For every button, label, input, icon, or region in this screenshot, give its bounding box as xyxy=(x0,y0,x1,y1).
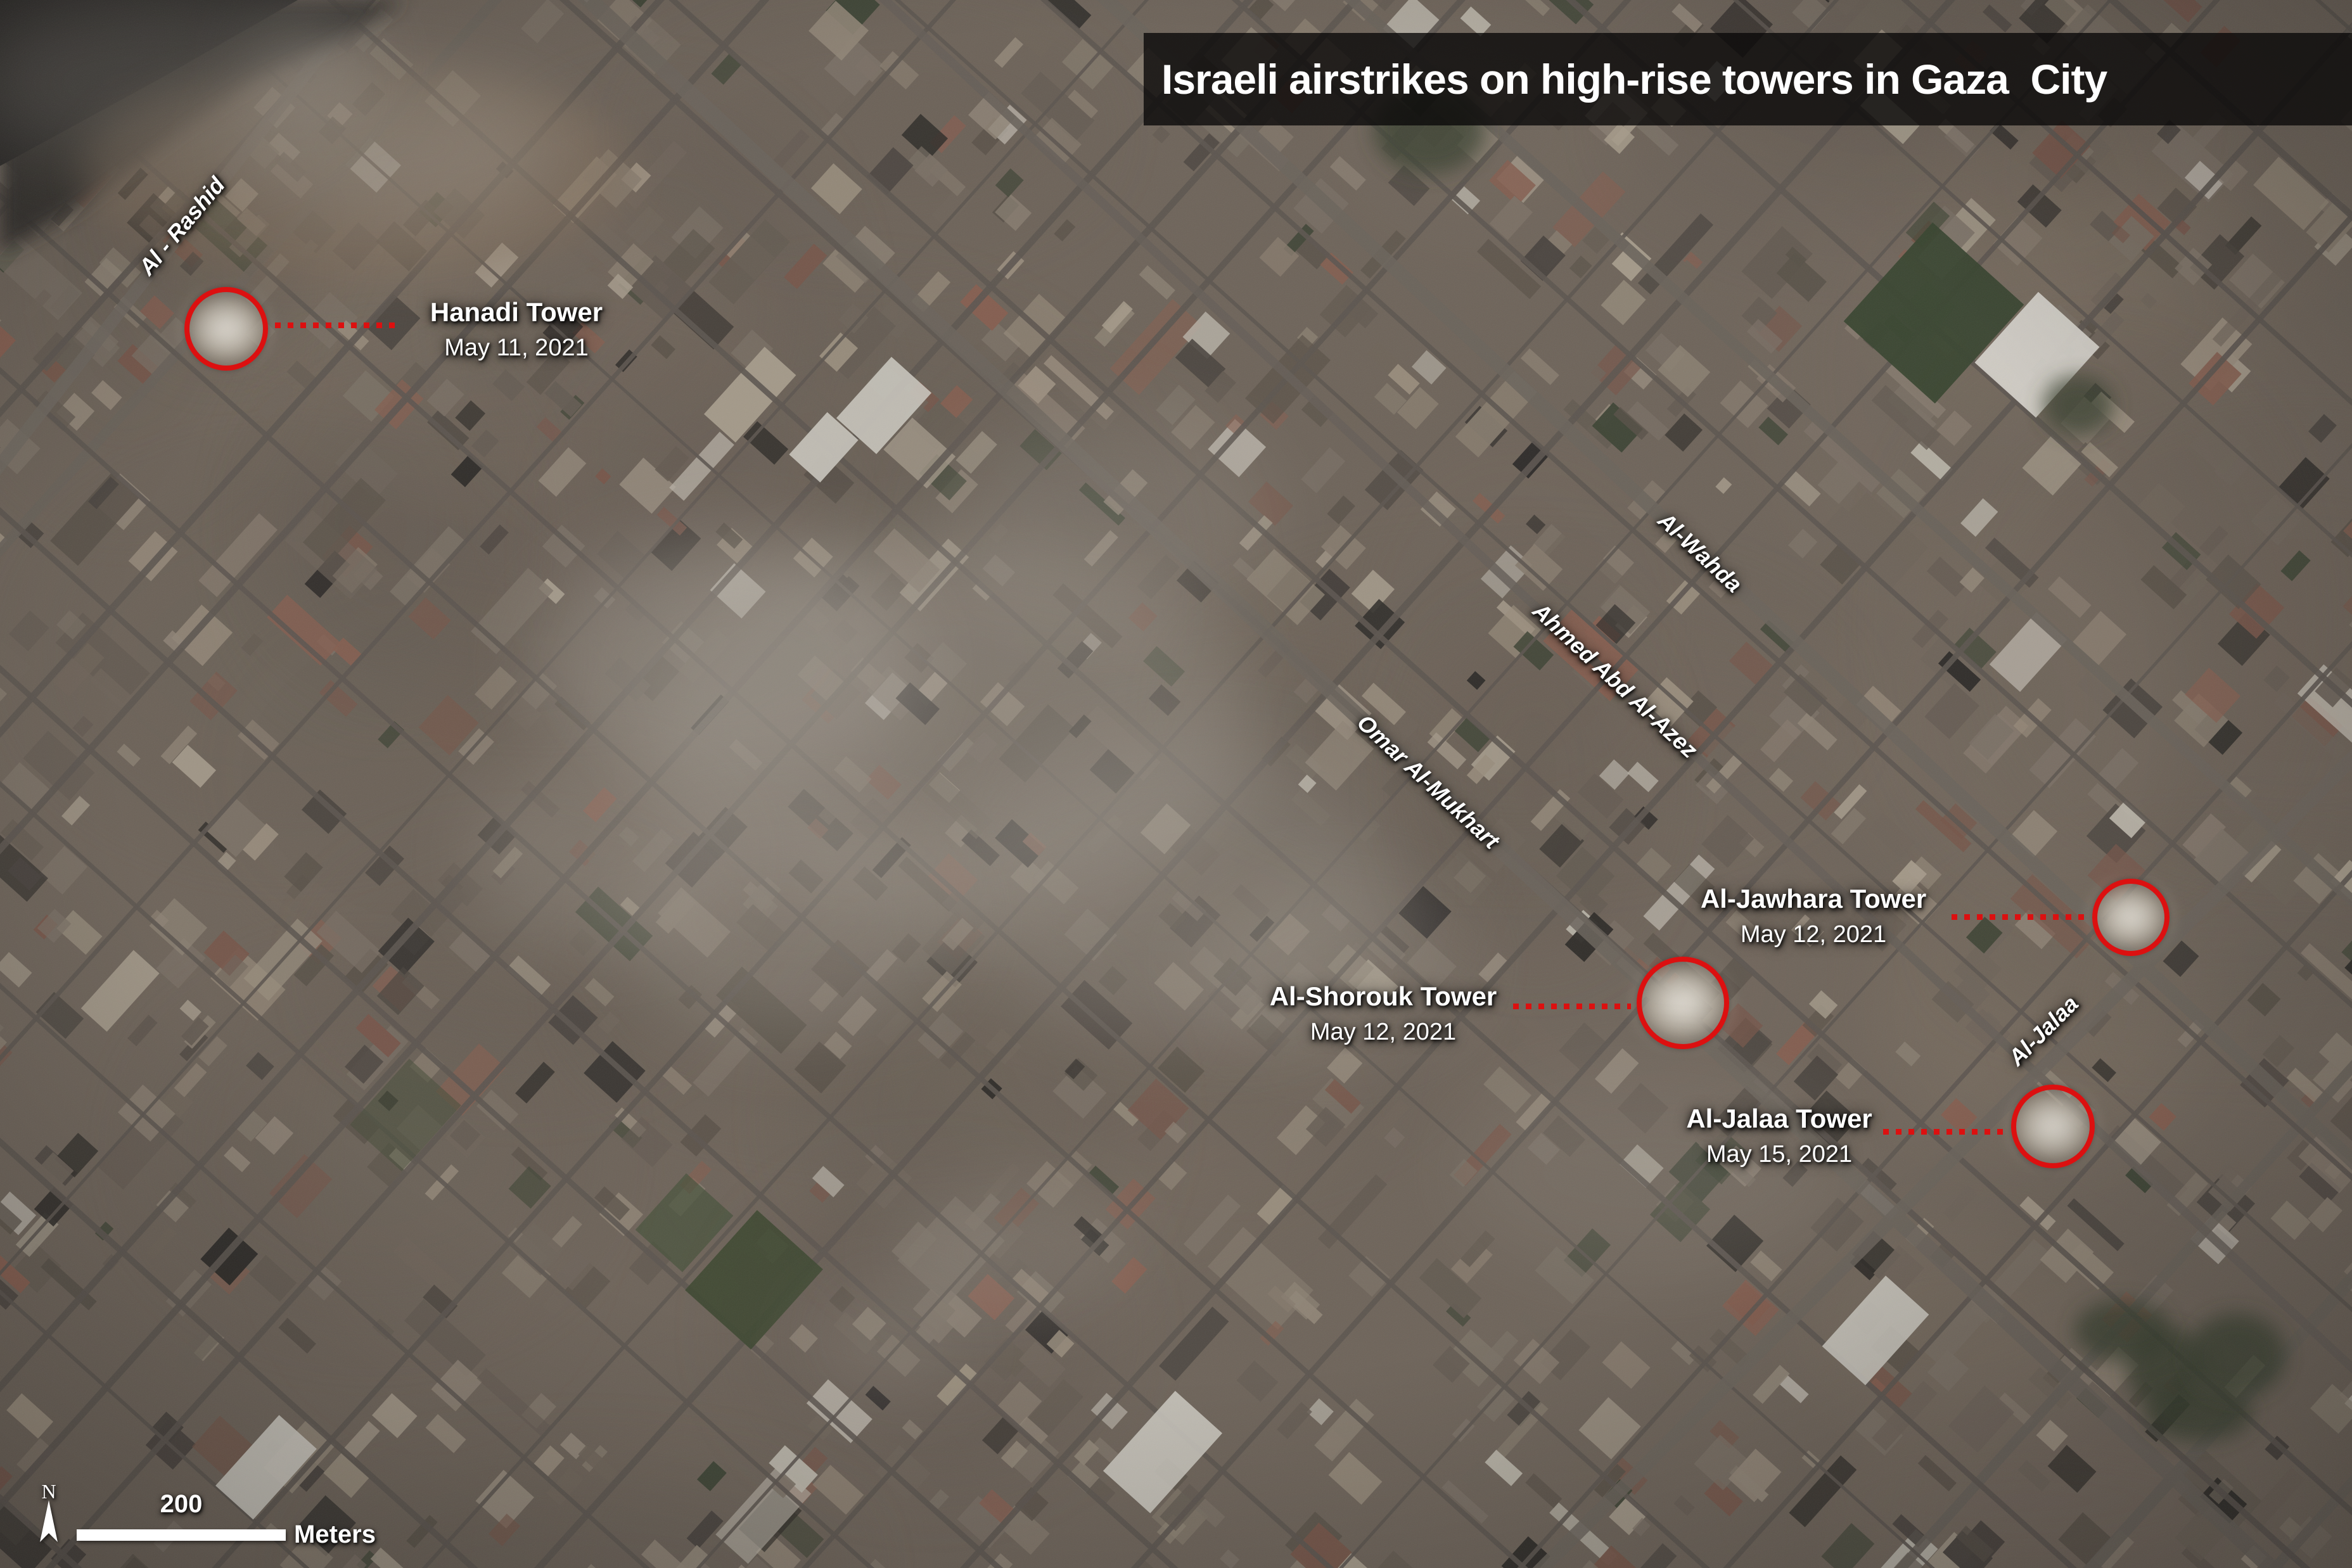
title-banner: Israeli airstrikes on high-rise towers i… xyxy=(1144,33,2352,125)
tower-name: Al-Jawhara Tower xyxy=(1701,881,1926,917)
tower-name: Al-Shorouk Tower xyxy=(1270,978,1497,1014)
strike-date: May 11, 2021 xyxy=(430,330,603,366)
map-title: Israeli airstrikes on high-rise towers i… xyxy=(1161,55,2107,103)
strike-label-al-shorouk-tower: Al-Shorouk TowerMay 12, 2021 xyxy=(1270,978,1497,1050)
scale-bar-value: 200 xyxy=(160,1490,203,1519)
strike-label-al-jalaa-tower: Al-Jalaa TowerMay 15, 2021 xyxy=(1686,1100,1872,1173)
strike-circle-al-shorouk-tower xyxy=(1637,957,1729,1049)
scale-bar-unit: Meters xyxy=(294,1520,376,1549)
satellite-imagery xyxy=(0,0,2352,1568)
strike-circle-hanadi-tower xyxy=(184,287,268,371)
leader-dotted-line-hanadi-tower xyxy=(275,322,399,328)
strike-date: May 15, 2021 xyxy=(1686,1137,1872,1173)
north-arrow-icon xyxy=(35,1499,63,1545)
tower-name: Hanadi Tower xyxy=(430,294,603,330)
strike-circle-al-jawhara-tower xyxy=(2092,879,2170,956)
leader-dotted-line-al-shorouk-tower xyxy=(1513,1004,1631,1009)
strike-label-hanadi-tower: Hanadi TowerMay 11, 2021 xyxy=(430,294,603,366)
strike-date: May 12, 2021 xyxy=(1270,1014,1497,1050)
strike-date: May 12, 2021 xyxy=(1701,917,1926,953)
strike-circle-al-jalaa-tower xyxy=(2011,1085,2095,1168)
leader-dotted-line-al-jalaa-tower xyxy=(1883,1129,2007,1135)
tower-name: Al-Jalaa Tower xyxy=(1686,1100,1872,1137)
leader-dotted-line-al-jawhara-tower xyxy=(1952,914,2087,920)
scale-bar xyxy=(77,1529,286,1541)
strike-label-al-jawhara-tower: Al-Jawhara TowerMay 12, 2021 xyxy=(1701,881,1926,953)
gaza-strike-map: Hanadi TowerMay 11, 2021Al-Shorouk Tower… xyxy=(0,0,2352,1568)
